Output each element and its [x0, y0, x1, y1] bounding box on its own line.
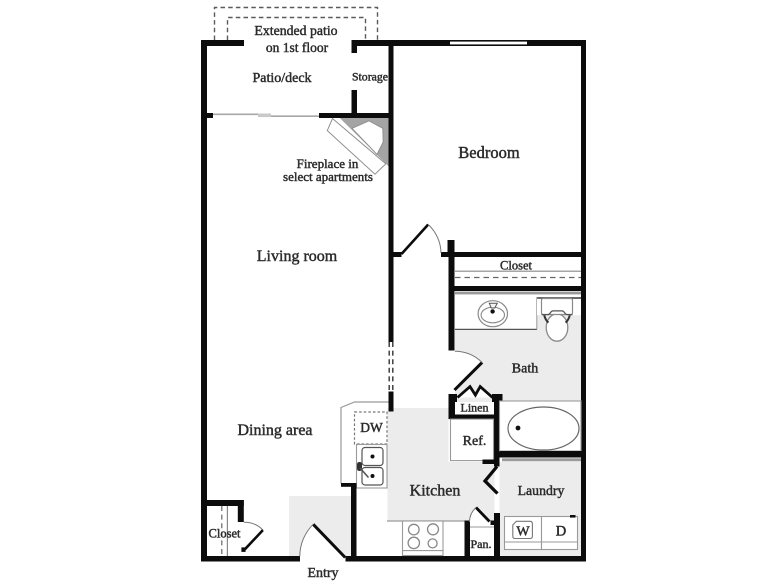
svg-text:Linen: Linen: [461, 401, 489, 415]
svg-text:W: W: [516, 524, 530, 539]
svg-text:Laundry: Laundry: [518, 483, 565, 498]
svg-text:Ref.: Ref.: [463, 434, 487, 449]
svg-text:D: D: [556, 523, 566, 539]
svg-text:Closet: Closet: [209, 527, 241, 541]
svg-text:on 1st floor: on 1st floor: [266, 40, 329, 55]
svg-text:Closet: Closet: [500, 259, 532, 273]
svg-text:Entry: Entry: [307, 566, 338, 581]
svg-text:Bedroom: Bedroom: [458, 143, 520, 162]
svg-text:Bath: Bath: [512, 362, 538, 377]
svg-text:Patio/deck: Patio/deck: [252, 71, 311, 86]
svg-text:Dining area: Dining area: [237, 422, 312, 439]
svg-text:Pan.: Pan.: [471, 537, 492, 551]
svg-text:Kitchen: Kitchen: [410, 482, 461, 499]
svg-text:Living room: Living room: [257, 248, 338, 265]
svg-text:DW: DW: [360, 420, 383, 435]
svg-text:select apartments: select apartments: [283, 169, 373, 184]
svg-text:Storage: Storage: [352, 70, 388, 84]
svg-text:Extended patio: Extended patio: [254, 23, 337, 38]
